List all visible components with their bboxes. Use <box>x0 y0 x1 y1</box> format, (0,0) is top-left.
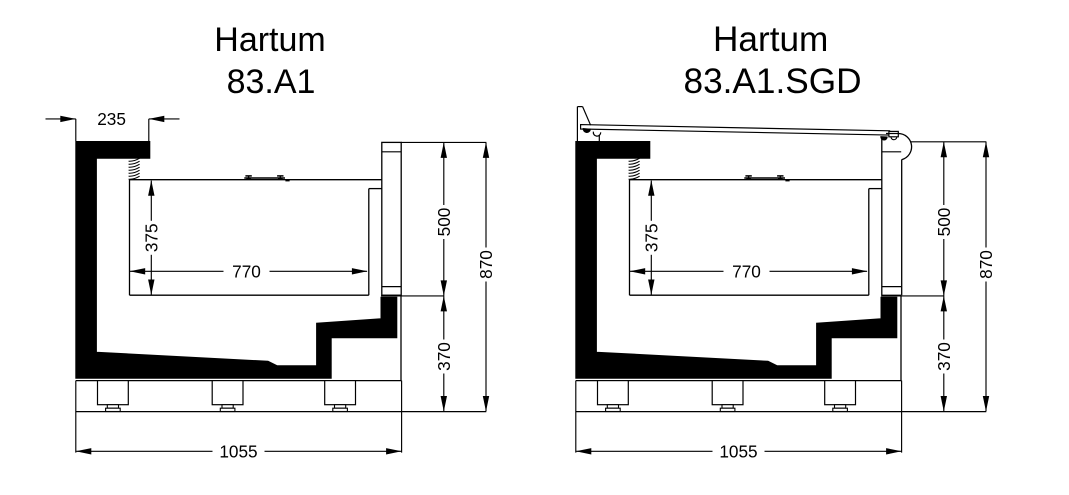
svg-text:83.A1.SGD: 83.A1.SGD <box>684 62 862 101</box>
svg-text:235: 235 <box>97 109 126 129</box>
svg-text:500: 500 <box>934 208 954 237</box>
svg-text:870: 870 <box>976 250 996 279</box>
svg-text:370: 370 <box>934 342 954 371</box>
svg-text:770: 770 <box>732 261 761 281</box>
svg-text:870: 870 <box>476 250 496 279</box>
svg-text:Hartum: Hartum <box>713 20 828 59</box>
svg-text:770: 770 <box>232 261 261 281</box>
svg-text:Hartum: Hartum <box>214 21 325 59</box>
svg-text:370: 370 <box>434 342 454 371</box>
svg-text:1055: 1055 <box>219 441 257 461</box>
svg-text:1055: 1055 <box>719 441 757 461</box>
svg-text:500: 500 <box>434 208 454 237</box>
svg-text:83.A1: 83.A1 <box>227 63 316 101</box>
svg-text:375: 375 <box>641 223 661 252</box>
svg-text:375: 375 <box>141 223 161 252</box>
